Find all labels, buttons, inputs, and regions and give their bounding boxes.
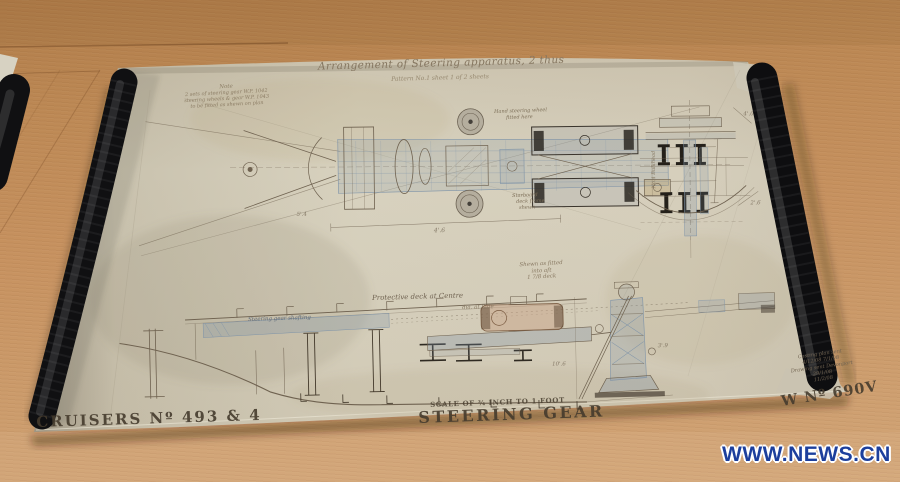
plan-handwheel-top	[457, 109, 483, 135]
section-dim-bottom: 2'.6	[749, 200, 761, 206]
plan-dim-left: 5'.4	[297, 212, 308, 218]
news-watermark: WWW.NEWS.CN	[722, 443, 891, 467]
plan-annotation-bottom3: shewn	[519, 204, 535, 211]
plan-handwheel-bottom	[456, 190, 483, 217]
neighbor-chart	[0, 54, 18, 176]
profile-dim-height: 10'.6	[552, 361, 566, 367]
section-dim-top: 4'.0	[742, 111, 754, 117]
plan-annotation-top2: fitted here	[506, 114, 533, 121]
photo-scene: 4'.6 5'.4 4'.0 2'.6 No.4 Bulkhead	[0, 0, 900, 482]
profile-sublabel: dia. at Side	[462, 304, 494, 311]
section-label: No.4 Bulkhead	[651, 151, 657, 190]
plan-dim-width: 4'.6	[433, 227, 445, 234]
profile-dim-base: 3'.9	[658, 343, 669, 349]
